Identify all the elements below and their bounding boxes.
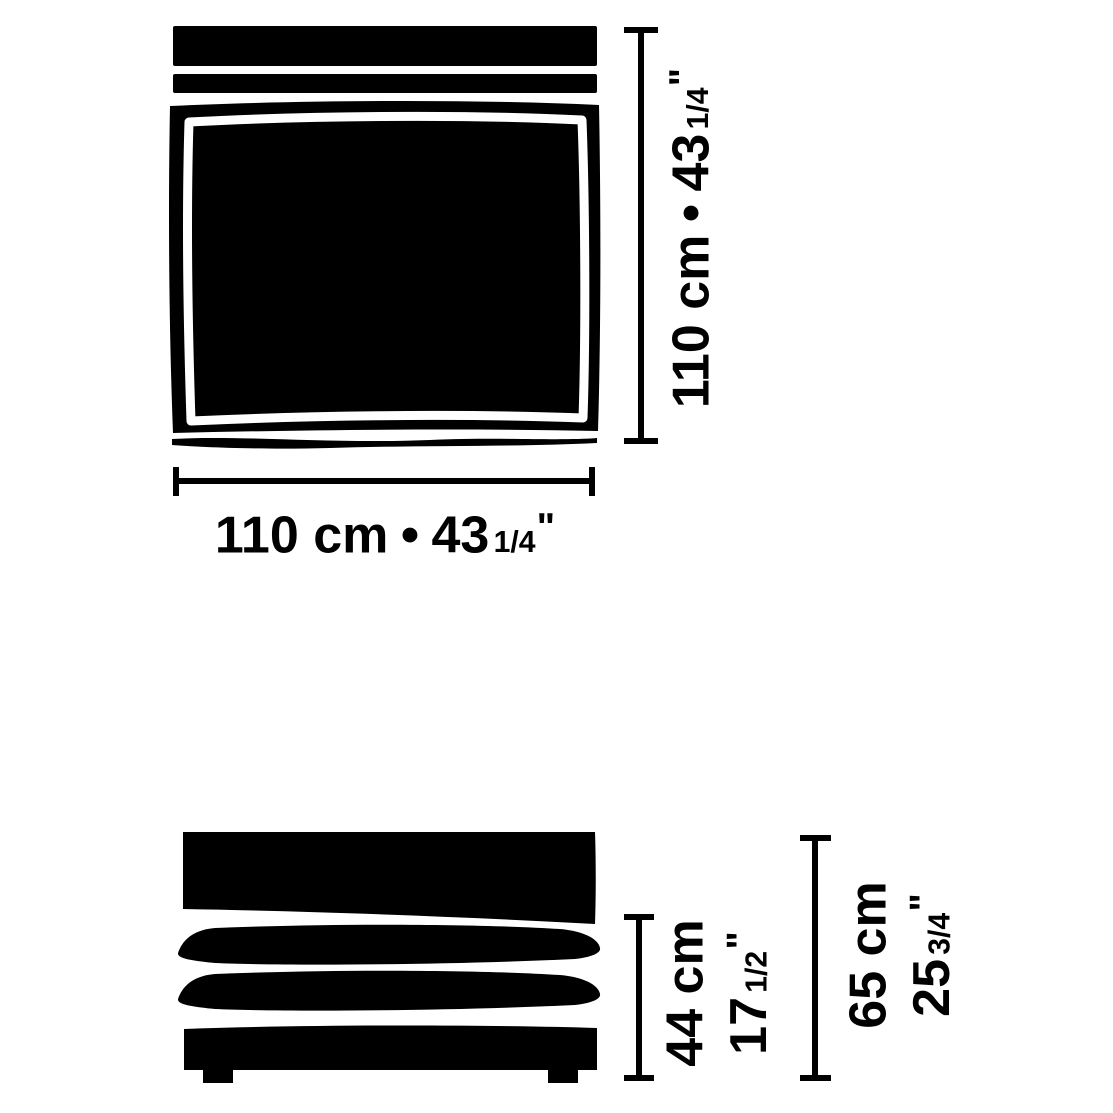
top-height-dim-line [624, 30, 658, 441]
imperial-value: 25 [903, 959, 961, 1017]
overall-height-label: 65 cm 253/4" [837, 881, 964, 1028]
inch-mark: " [720, 931, 763, 950]
inch-mark: " [662, 68, 705, 87]
imperial-value: 17 [720, 997, 778, 1055]
front-view-backrest [183, 832, 596, 924]
seat-height-label: 44 cm 171/2" [654, 919, 781, 1066]
inch-mark: " [903, 893, 946, 912]
seat-height-dim-line [624, 917, 654, 1078]
inch-mark: " [537, 506, 556, 549]
imperial-value: 43 [432, 507, 490, 565]
top-width-label: 110 cm•431/4" [215, 504, 555, 568]
top-height-label: 110 cm•431/4" [660, 68, 724, 408]
separator-dot: • [401, 507, 419, 565]
dimension-diagram: 110 cm•431/4" 110 cm•431/4" 44 cm 171/2"… [0, 0, 1113, 1113]
metric-value: 44 cm [656, 919, 714, 1066]
top-view-front-edge-strip [172, 438, 597, 449]
metric-value: 110 cm [663, 235, 721, 409]
imperial-fraction: 1/2 [740, 951, 773, 993]
separator-dot: • [663, 204, 721, 222]
imperial-fraction: 3/4 [923, 913, 956, 955]
top-view-backrest-bar [173, 26, 597, 66]
imperial-value: 43 [663, 134, 721, 192]
top-view [169, 26, 658, 496]
overall-height-dim-line [800, 838, 831, 1078]
imperial-fraction: 1/4 [494, 527, 536, 560]
metric-value: 65 cm [839, 881, 897, 1028]
top-width-dim-line [176, 467, 592, 496]
front-view-top-cushion [178, 925, 600, 965]
metric-value: 110 cm [215, 507, 389, 565]
top-view-frame-bar [173, 74, 597, 93]
top-view-seat-cushion [169, 101, 600, 433]
front-view-base [184, 1026, 597, 1071]
imperial-fraction: 1/4 [683, 88, 716, 130]
front-view-bottom-cushion [178, 971, 600, 1011]
